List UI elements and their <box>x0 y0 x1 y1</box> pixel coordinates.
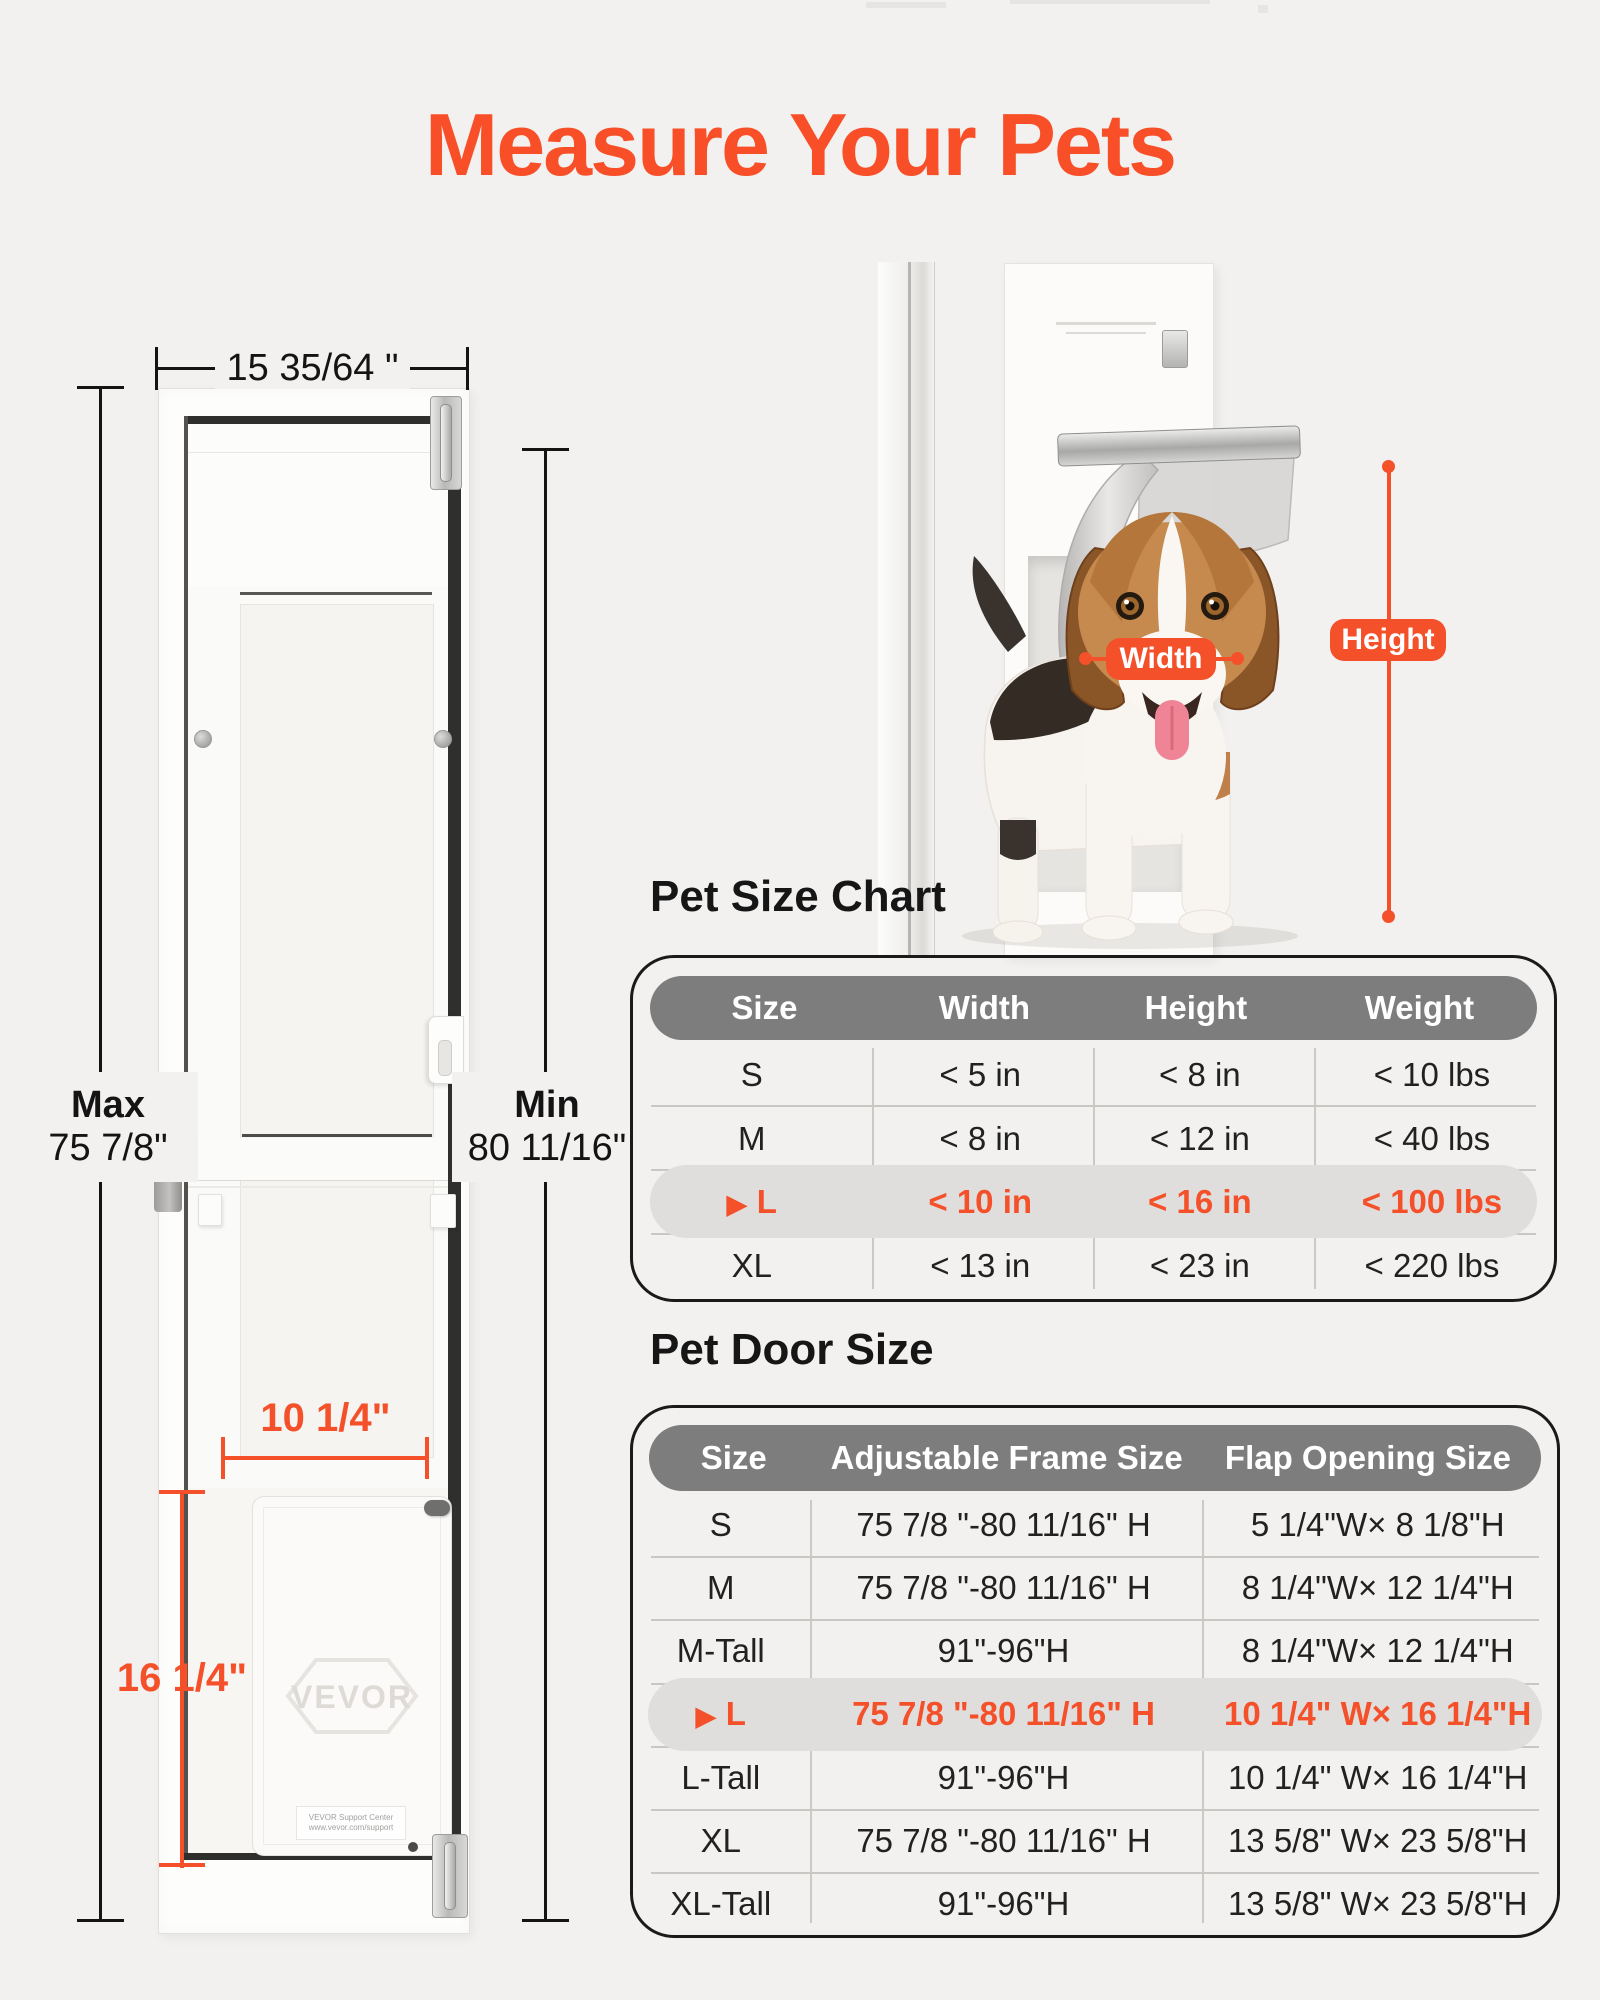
height-tag: Height <box>1330 619 1446 661</box>
photo-label-line <box>1066 332 1146 334</box>
screw-icon <box>194 730 212 748</box>
dim-label-max: Max 75 7/8" <box>18 1072 198 1182</box>
support-sticker-line1: VEVOR Support Center <box>297 1813 405 1823</box>
mid-rail-shade <box>188 1186 448 1188</box>
table-row-highlighted: ▶L < 10 in < 16 in < 100 lbs <box>633 1171 1554 1235</box>
support-sticker-line2: www.vevor.com/support <box>297 1823 405 1833</box>
photo-door-latch-icon <box>1162 330 1188 368</box>
door-top-panel <box>188 424 448 588</box>
mid-rail <box>188 1138 448 1181</box>
column-header: Size <box>650 989 879 1027</box>
top-crop-smudge <box>1010 0 1210 4</box>
measure-dot-icon <box>1079 652 1092 665</box>
dim-tick <box>159 1863 205 1867</box>
frame-clip <box>430 1194 456 1228</box>
column-header: Height <box>1090 989 1302 1027</box>
slide-bolt-lock-icon <box>430 396 462 490</box>
dim-line-flap-width <box>223 1456 428 1460</box>
table-row: XL < 13 in < 23 in < 220 lbs <box>633 1234 1554 1298</box>
measure-dot-icon <box>1382 910 1395 923</box>
measure-dot-icon <box>1231 652 1244 665</box>
dim-label-top-width: 15 35/64 " <box>157 345 468 391</box>
page-title: Measure Your Pets <box>0 94 1600 196</box>
column-header: Size <box>649 1439 818 1477</box>
column-header: Weight <box>1302 989 1537 1027</box>
measure-dot-icon <box>1382 460 1395 473</box>
height-measure-line <box>1387 468 1391 918</box>
dim-tick <box>522 448 569 451</box>
table-row: S 75 7/8 "-80 11/16" H 5 1/4"W× 8 1/8"H <box>633 1493 1557 1556</box>
table-row: XL-Tall 91"-96"H 13 5/8" W× 23 5/8"H <box>633 1873 1557 1936</box>
photo-label-line <box>1056 322 1156 325</box>
dim-line-min <box>544 450 547 1922</box>
pet-door-size-heading: Pet Door Size <box>650 1325 934 1375</box>
screw-icon <box>434 730 452 748</box>
top-crop-smudge <box>1258 5 1268 13</box>
table-row: XL 75 7/8 "-80 11/16" H 13 5/8" W× 23 5/… <box>633 1809 1557 1872</box>
column-header: Flap Opening Size <box>1195 1439 1541 1477</box>
door-top-panel-seam <box>188 452 448 453</box>
dim-tick <box>522 1919 569 1922</box>
infographic-canvas: Measure Your Pets VEVOR VEVOR Support <box>0 0 1600 2000</box>
table-row: M 75 7/8 "-80 11/16" H 8 1/4"W× 12 1/4"H <box>633 1556 1557 1619</box>
pet-size-chart-table: Size Width Height Weight S < 5 in < 8 in… <box>630 955 1557 1302</box>
glass-top-edge <box>240 592 432 595</box>
table-row-highlighted: ▶L 75 7/8 "-80 11/16" H 10 1/4" W× 16 1/… <box>633 1683 1557 1746</box>
pet-size-chart-rows: S < 5 in < 8 in < 10 lbs M < 8 in < 12 i… <box>633 1043 1554 1298</box>
width-tag: Width <box>1106 638 1216 680</box>
beagle-dog-illustration <box>890 420 1340 960</box>
pet-size-chart-heading: Pet Size Chart <box>650 872 946 922</box>
mid-rail-edge <box>242 1134 432 1137</box>
door-track-top <box>184 416 458 424</box>
door-glass <box>240 604 434 1458</box>
pet-door-size-rows: S 75 7/8 "-80 11/16" H 5 1/4"W× 8 1/8"H … <box>633 1493 1557 1936</box>
pet-size-chart-header: Size Width Height Weight <box>650 976 1537 1040</box>
dim-tick <box>77 1919 124 1922</box>
pet-door-size-header: Size Adjustable Frame Size Flap Opening … <box>649 1425 1541 1491</box>
flap-screw-icon <box>408 1842 418 1852</box>
dim-tick <box>425 1437 429 1479</box>
table-row: M < 8 in < 12 in < 40 lbs <box>633 1107 1554 1171</box>
highlight-arrow-icon: ▶ <box>727 1189 747 1219</box>
top-crop-smudge <box>866 2 946 8</box>
flap-slide-bolt-icon <box>432 1834 468 1918</box>
dim-label-flap-width: 10 1/4" <box>223 1396 428 1441</box>
dim-label-min: Min 80 11/16" <box>452 1072 642 1182</box>
dim-tick <box>77 386 124 389</box>
beagle-dog <box>962 512 1298 949</box>
column-header: Adjustable Frame Size <box>818 1439 1194 1477</box>
flap-pin-lock-icon <box>424 1500 450 1516</box>
support-sticker: VEVOR Support Center www.vevor.com/suppo… <box>296 1806 406 1840</box>
svg-text:VEVOR: VEVOR <box>291 1679 413 1715</box>
dim-tick <box>159 1490 205 1494</box>
dim-tick <box>221 1437 225 1479</box>
table-row: L-Tall 91"-96"H 10 1/4" W× 16 1/4"H <box>633 1746 1557 1809</box>
window-latch-lever <box>438 1040 452 1076</box>
pet-door-size-table: Size Adjustable Frame Size Flap Opening … <box>630 1405 1560 1938</box>
dim-label-flap-height: 16 1/4" <box>102 1656 262 1701</box>
table-row: S < 5 in < 8 in < 10 lbs <box>633 1043 1554 1107</box>
highlight-arrow-icon: ▶ <box>696 1701 716 1731</box>
vevor-logo-emboss: VEVOR <box>262 1650 442 1742</box>
table-row: M-Tall 91"-96"H 8 1/4"W× 12 1/4"H <box>633 1620 1557 1683</box>
column-header: Width <box>879 989 1090 1027</box>
frame-clip <box>198 1194 222 1226</box>
